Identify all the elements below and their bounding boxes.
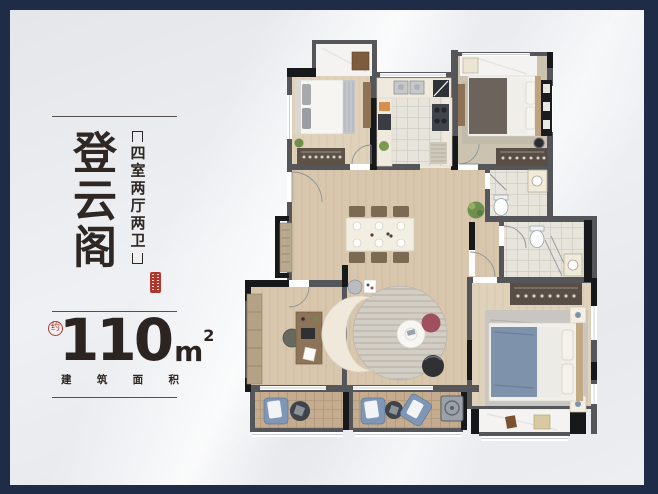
dining-area xyxy=(346,206,414,263)
seal-stamp xyxy=(150,272,161,293)
area-unit: m xyxy=(174,337,203,368)
divider-top xyxy=(52,116,177,117)
area-figure: 110 m 2 xyxy=(59,313,214,368)
bracket-top-icon xyxy=(132,131,143,142)
balcony-left xyxy=(264,398,310,424)
entry-hall xyxy=(280,223,292,272)
area-value: 110 xyxy=(59,313,171,368)
corridor xyxy=(468,202,485,219)
building-title: 登云阁 xyxy=(68,130,112,271)
floor-plan-poster: 登云阁 四室两厅两卫 约 110 m 2 建 筑 面 积 xyxy=(0,0,658,494)
spec-column: 四室两厅两卫 xyxy=(128,131,146,264)
area-caption: 建 筑 面 积 xyxy=(61,372,179,387)
floor-plan-image xyxy=(242,40,622,458)
area-exponent: 2 xyxy=(203,328,214,344)
divider-bottom xyxy=(52,397,177,398)
bracket-bottom-icon xyxy=(132,253,143,264)
layout-spec: 四室两厅两卫 xyxy=(130,145,145,250)
